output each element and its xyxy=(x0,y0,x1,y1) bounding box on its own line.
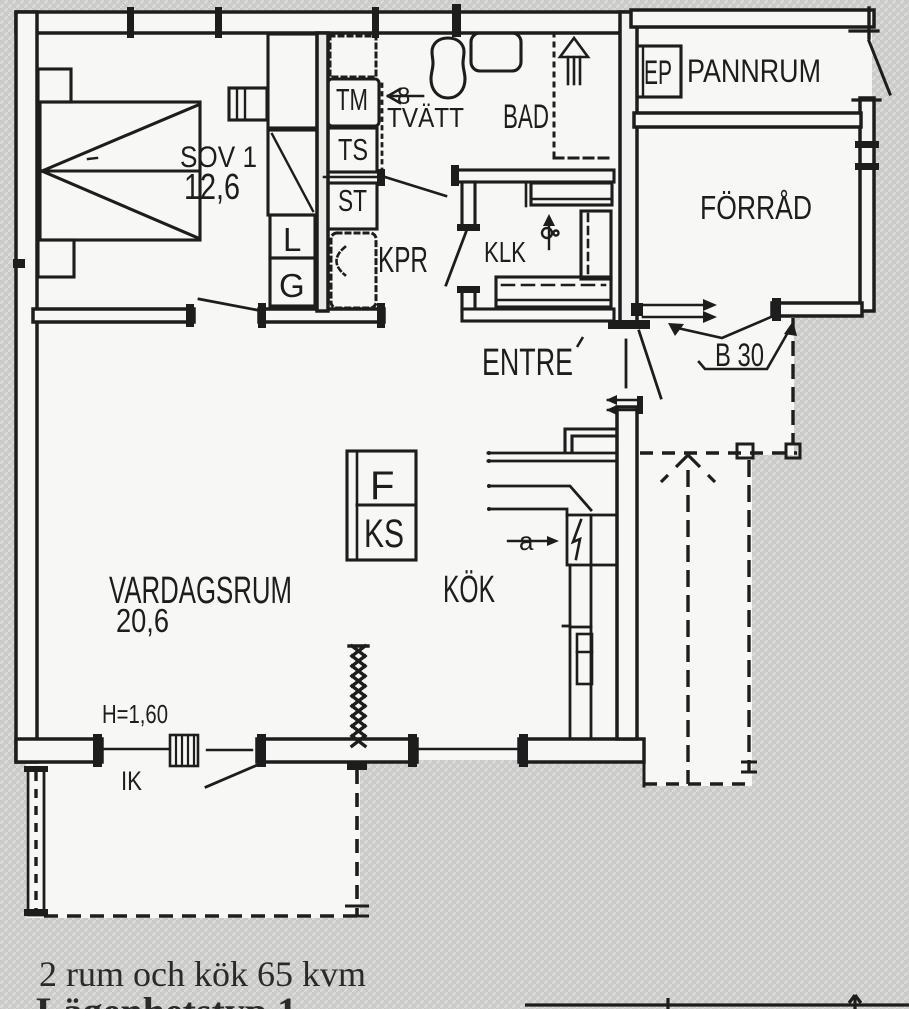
svg-text:8: 8 xyxy=(397,83,410,110)
svg-text:L: L xyxy=(283,221,301,258)
svg-text:H=1,60: H=1,60 xyxy=(102,699,168,729)
svg-text:PANNRUM: PANNRUM xyxy=(687,53,821,89)
svg-text:KPR: KPR xyxy=(378,239,428,280)
svg-text:KLK: KLK xyxy=(484,237,526,269)
svg-text:20,6: 20,6 xyxy=(116,602,169,639)
svg-text:a: a xyxy=(519,526,534,556)
svg-text:G: G xyxy=(279,267,305,304)
svg-text:KS: KS xyxy=(364,512,404,556)
svg-text:FÖRRÅD: FÖRRÅD xyxy=(700,189,812,226)
svg-text:EP: EP xyxy=(644,54,672,92)
svg-text:BAD: BAD xyxy=(503,98,549,136)
svg-text:2 rum och kök 65 kvm: 2 rum och kök 65 kvm xyxy=(39,954,366,994)
svg-text:F: F xyxy=(370,464,394,508)
svg-text:KÖK: KÖK xyxy=(443,569,495,611)
svg-text:ST: ST xyxy=(338,183,367,218)
svg-text:ENTRE: ENTRE xyxy=(482,342,573,384)
svg-text:12,6: 12,6 xyxy=(184,166,240,207)
svg-text:TM: TM xyxy=(336,82,368,117)
svg-text:B 30: B 30 xyxy=(715,337,764,373)
svg-text:TS: TS xyxy=(338,132,368,167)
svg-text:IK: IK xyxy=(121,766,142,796)
svg-text:Lägenhetstyp 1: Lägenhetstyp 1 xyxy=(36,989,297,1009)
